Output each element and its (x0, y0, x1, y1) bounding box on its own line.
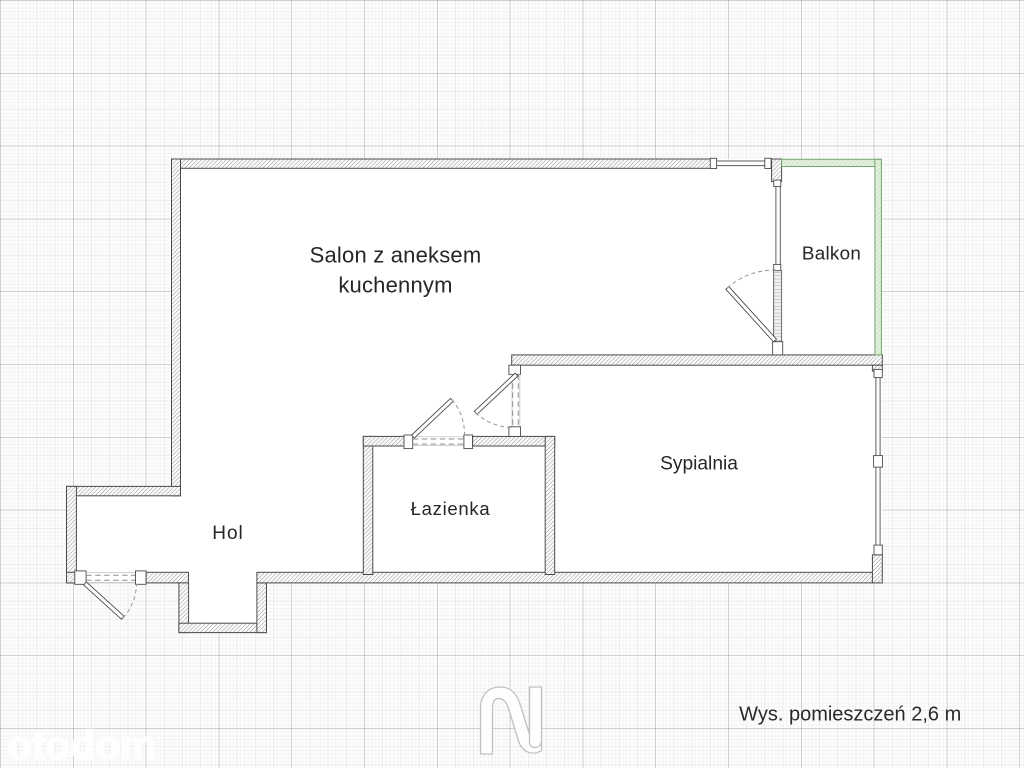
svg-text:Wys. pomieszczeń 2,6 m: Wys. pomieszczeń 2,6 m (739, 704, 961, 726)
svg-text:Sypialnia: Sypialnia (660, 454, 738, 475)
svg-text:Łazienka: Łazienka (411, 498, 491, 519)
svg-text:kuchennym: kuchennym (338, 273, 452, 298)
svg-text:Balkon: Balkon (802, 243, 861, 264)
svg-text:otodom: otodom (7, 724, 157, 768)
svg-text:Salon z aneksem: Salon z aneksem (310, 243, 482, 268)
svg-text:Hol: Hol (212, 523, 244, 544)
